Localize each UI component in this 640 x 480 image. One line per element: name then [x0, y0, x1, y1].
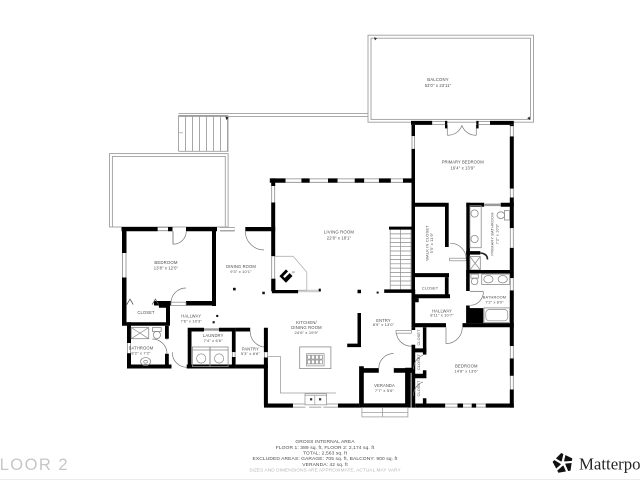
svg-text:FP: FP [292, 271, 296, 275]
svg-text:BATHROOM: BATHROOM [483, 295, 506, 300]
svg-text:8'9" x 13'0": 8'9" x 13'0" [373, 322, 395, 327]
svg-text:Matterport: Matterport [579, 455, 640, 474]
svg-text:9'3" x 10'1": 9'3" x 10'1" [230, 269, 252, 274]
svg-text:BEDROOM: BEDROOM [154, 260, 178, 265]
svg-text:SIZES AND DIMENSIONS ARE APPRO: SIZES AND DIMENSIONS ARE APPROXIMATE, AC… [249, 467, 401, 472]
svg-text:LIVING ROOM: LIVING ROOM [324, 230, 355, 235]
svg-text:CLOSET: CLOSET [422, 286, 439, 291]
svg-text:5'5" x 11'9": 5'5" x 11'9" [429, 232, 434, 253]
svg-text:FLOOR 1: 389 sq. ft, FLOOR 2:: FLOOR 1: 389 sq. ft, FLOOR 2: 2,174 sq. … [276, 445, 375, 451]
svg-text:CLOSET: CLOSET [417, 353, 421, 370]
svg-text:FLOOR 2: FLOOR 2 [0, 456, 69, 474]
svg-text:CLOSET: CLOSET [137, 310, 155, 315]
svg-text:24'6" x 19'9": 24'6" x 19'9" [295, 330, 319, 335]
svg-text:PRIMARY BATHROOM: PRIMARY BATHROOM [490, 212, 495, 255]
svg-text:BALCONY: BALCONY [427, 77, 449, 82]
svg-text:CLOSET: CLOSET [417, 329, 421, 346]
svg-text:22'8" x 18'1": 22'8" x 18'1" [327, 236, 352, 241]
svg-text:5'3" x 6'6": 5'3" x 6'6" [241, 351, 261, 356]
svg-text:13'8" x 12'0": 13'8" x 12'0" [154, 266, 179, 271]
svg-text:14'8" x 13'6": 14'8" x 13'6" [454, 369, 478, 374]
svg-text:7'2" x 8'0": 7'2" x 8'0" [485, 300, 504, 304]
svg-text:EXCLUDED AREAS: GARAGE: 705 sq: EXCLUDED AREAS: GARAGE: 705 sq. ft, BALC… [253, 456, 398, 462]
svg-text:7'6" x 10'3": 7'6" x 10'3" [180, 318, 202, 323]
svg-text:8'2" x 7'2": 8'2" x 7'2" [131, 351, 151, 356]
svg-text:53'0" x 23'11": 53'0" x 23'11" [425, 83, 452, 88]
svg-text:8'11" x 10'7": 8'11" x 10'7" [430, 313, 454, 318]
svg-text:CLOSET: CLOSET [417, 380, 421, 397]
svg-text:7'7" x 5'6": 7'7" x 5'6" [375, 388, 395, 393]
svg-text:7'2" x 10'9": 7'2" x 10'9" [495, 223, 499, 244]
svg-text:PRIMARY BEDROOM: PRIMARY BEDROOM [442, 160, 485, 165]
svg-text:16'4" x 13'9": 16'4" x 13'9" [450, 166, 475, 171]
svg-text:TOTAL: 2,563 sq. ft: TOTAL: 2,563 sq. ft [303, 451, 348, 457]
svg-text:7'4" x 6'6": 7'4" x 6'6" [204, 338, 224, 343]
svg-text:GROSS INTERNAL AREA: GROSS INTERNAL AREA [295, 439, 355, 445]
